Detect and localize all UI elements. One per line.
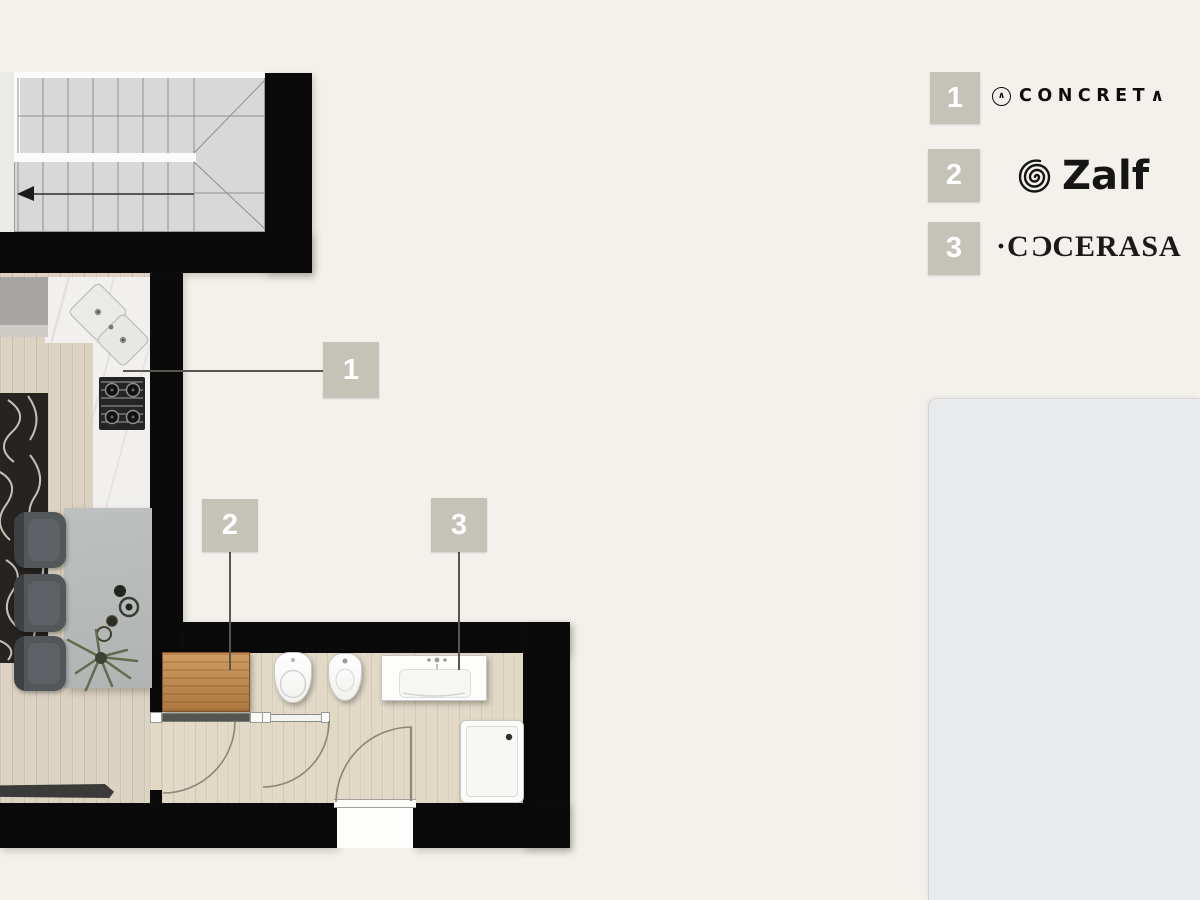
door-threshold bbox=[263, 714, 329, 722]
chair-seat bbox=[28, 643, 60, 684]
legend-badge-3: 3 bbox=[928, 222, 980, 275]
cocerasa-mirrored-letter: C bbox=[1030, 230, 1053, 264]
plan-marker-2-number: 2 bbox=[222, 509, 238, 542]
tv-console bbox=[0, 784, 114, 798]
zalf-logo-spiral-icon bbox=[1012, 153, 1058, 199]
door-jamb bbox=[321, 712, 330, 723]
next-page-panel bbox=[928, 398, 1200, 900]
legend-badge-2-number: 2 bbox=[946, 159, 962, 192]
staircase bbox=[14, 72, 265, 232]
stair-outline-left bbox=[14, 78, 20, 153]
shower-tray-inner bbox=[466, 726, 518, 797]
chair-seat bbox=[28, 581, 60, 625]
furniture-cabinet bbox=[162, 652, 250, 712]
legend-badge-1: 1 bbox=[930, 72, 980, 124]
kitchen-counter-side bbox=[93, 343, 150, 508]
chair-seat bbox=[28, 519, 60, 561]
plan-marker-1-number: 1 bbox=[343, 354, 359, 387]
plan-marker-2: 2 bbox=[202, 499, 258, 552]
door-jamb bbox=[150, 712, 162, 723]
stair-landing-edge bbox=[0, 72, 14, 232]
floorplan-page: 1 2 3 1 ∧ CONCRET∧ 2 Zalf 3 ·CCCERASA bbox=[0, 0, 1200, 900]
stair-gap bbox=[14, 153, 196, 162]
legend-badge-1-number: 1 bbox=[947, 82, 963, 115]
washbasin-vanity bbox=[381, 655, 487, 701]
wall bbox=[0, 232, 312, 273]
entrance-threshold bbox=[334, 799, 416, 808]
wall bbox=[183, 622, 570, 653]
wall bbox=[413, 803, 570, 848]
chair bbox=[14, 512, 66, 568]
legend-badge-3-number: 3 bbox=[946, 232, 962, 265]
kitchen-cabinet-block bbox=[0, 277, 48, 337]
kitchen-counter-top bbox=[45, 277, 150, 343]
sliding-door-track bbox=[162, 713, 250, 722]
washbasin bbox=[399, 669, 471, 698]
chair bbox=[14, 574, 66, 632]
doorway-floor bbox=[150, 723, 162, 790]
dining-table bbox=[64, 508, 152, 688]
concreta-logo-text: CONCRET∧ bbox=[1019, 86, 1170, 106]
legend-brand-concreta: ∧ CONCRET∧ bbox=[992, 82, 1170, 110]
entrance-opening bbox=[337, 803, 413, 848]
legend-brand-cocerasa: ·CCCERASA bbox=[996, 228, 1182, 266]
stair-outline-top bbox=[14, 72, 265, 78]
legend-brand-zalf: Zalf bbox=[1012, 152, 1149, 200]
plan-marker-1: 1 bbox=[323, 342, 379, 398]
wall bbox=[150, 273, 183, 653]
concreta-logo-icon: ∧ bbox=[992, 87, 1011, 106]
zalf-logo-text: Zalf bbox=[1062, 153, 1149, 199]
door-jamb bbox=[262, 712, 271, 723]
wall bbox=[0, 803, 337, 848]
shower-tray bbox=[460, 720, 524, 803]
chair bbox=[14, 636, 66, 691]
plan-marker-3-number: 3 bbox=[451, 509, 467, 542]
legend-badge-2: 2 bbox=[928, 149, 980, 202]
plan-marker-3: 3 bbox=[431, 498, 487, 552]
